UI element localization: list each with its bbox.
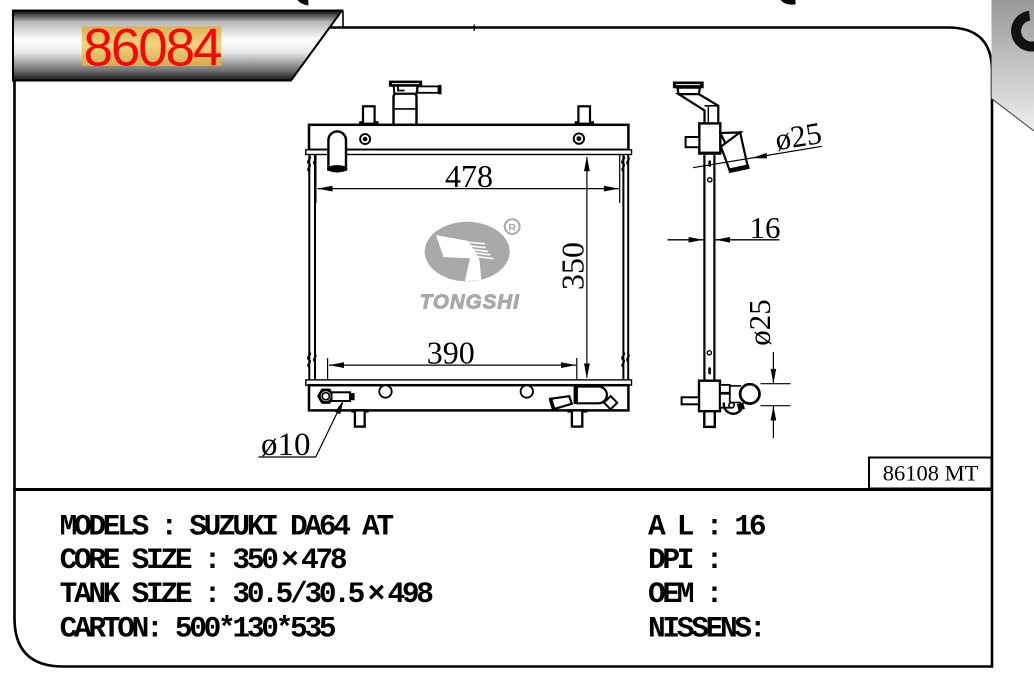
svg-text:A L : 16: A L : 16 <box>648 510 766 544</box>
svg-text:TANK SIZE : 30.5/30.5×498: TANK SIZE : 30.5/30.5×498 <box>60 577 434 611</box>
svg-text:R: R <box>508 222 516 234</box>
svg-text:16: 16 <box>750 210 781 245</box>
svg-text:TONGSHI: TONGSHI <box>420 291 520 314</box>
svg-text:ø25: ø25 <box>742 299 777 346</box>
svg-text:350: 350 <box>555 242 591 290</box>
svg-text:CORE SIZE : 350×478: CORE SIZE : 350×478 <box>60 543 347 577</box>
svg-text:86084: 86084 <box>84 18 222 77</box>
svg-text:86108 MT: 86108 MT <box>883 461 979 486</box>
svg-text:ø10: ø10 <box>261 427 311 463</box>
svg-text:478: 478 <box>445 158 493 194</box>
svg-text:390: 390 <box>427 335 475 371</box>
svg-text:MODELS : SUZUKI DA64 AT: MODELS : SUZUKI DA64 AT <box>60 510 394 544</box>
svg-text:NISSENS:: NISSENS: <box>648 612 763 646</box>
svg-text:OEM :: OEM : <box>648 577 720 611</box>
svg-text:CARTON: 500*130*535: CARTON: 500*130*535 <box>60 612 336 646</box>
svg-text:ø25: ø25 <box>773 115 825 157</box>
svg-text:DPI :: DPI : <box>648 543 720 577</box>
